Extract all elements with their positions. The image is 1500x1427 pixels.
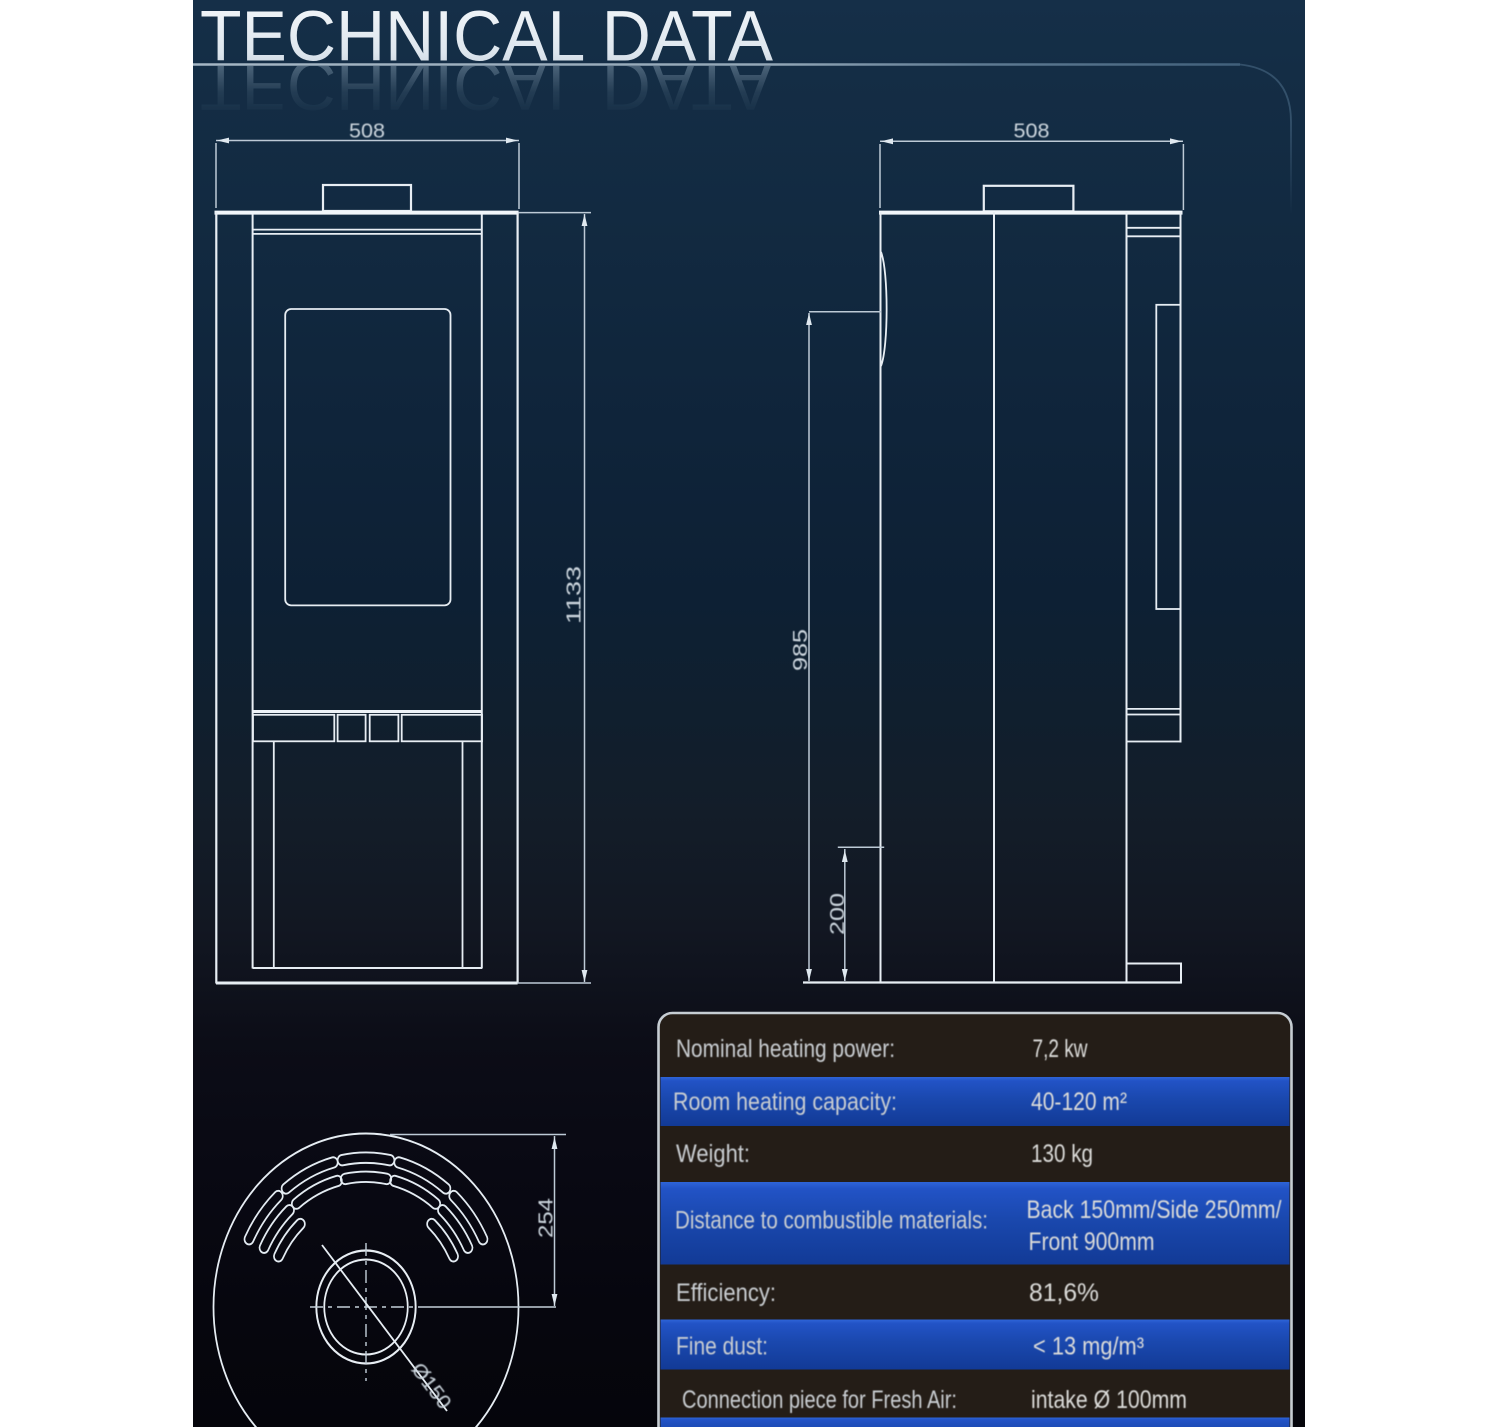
- svg-text:254: 254: [536, 1198, 558, 1238]
- svg-text:40-120 m²: 40-120 m²: [1031, 1088, 1127, 1116]
- svg-text:81,6%: 81,6%: [1029, 1279, 1099, 1307]
- svg-text:Room heating capacity:: Room heating capacity:: [673, 1088, 897, 1116]
- svg-text:Connection piece for Fresh Air: Connection piece for Fresh Air:: [682, 1386, 957, 1414]
- svg-text:Fine dust:: Fine dust:: [676, 1333, 768, 1361]
- svg-text:intake Ø 100mm: intake Ø 100mm: [1031, 1386, 1187, 1414]
- svg-text:1133: 1133: [564, 566, 586, 624]
- svg-text:Nominal heating power:: Nominal heating power:: [676, 1035, 895, 1063]
- svg-text:Distance to combustible materi: Distance to combustible materials:: [675, 1207, 988, 1235]
- svg-text:508: 508: [1014, 121, 1050, 143]
- svg-text:Front 900mm: Front 900mm: [1029, 1228, 1155, 1256]
- svg-text:TECHNICAL DATA: TECHNICAL DATA: [200, 45, 774, 124]
- svg-text:200: 200: [827, 893, 849, 935]
- svg-text:508: 508: [349, 121, 385, 143]
- svg-text:985: 985: [790, 629, 812, 671]
- svg-text:< 13 mg/m³: < 13 mg/m³: [1033, 1333, 1144, 1361]
- svg-text:Efficiency:: Efficiency:: [676, 1279, 776, 1307]
- svg-text:Weight:: Weight:: [676, 1140, 750, 1168]
- svg-text:130 kg: 130 kg: [1031, 1140, 1093, 1168]
- svg-text:Back 150mm/Side 250mm/: Back 150mm/Side 250mm/: [1027, 1196, 1282, 1224]
- svg-text:7,2 kw: 7,2 kw: [1033, 1035, 1089, 1063]
